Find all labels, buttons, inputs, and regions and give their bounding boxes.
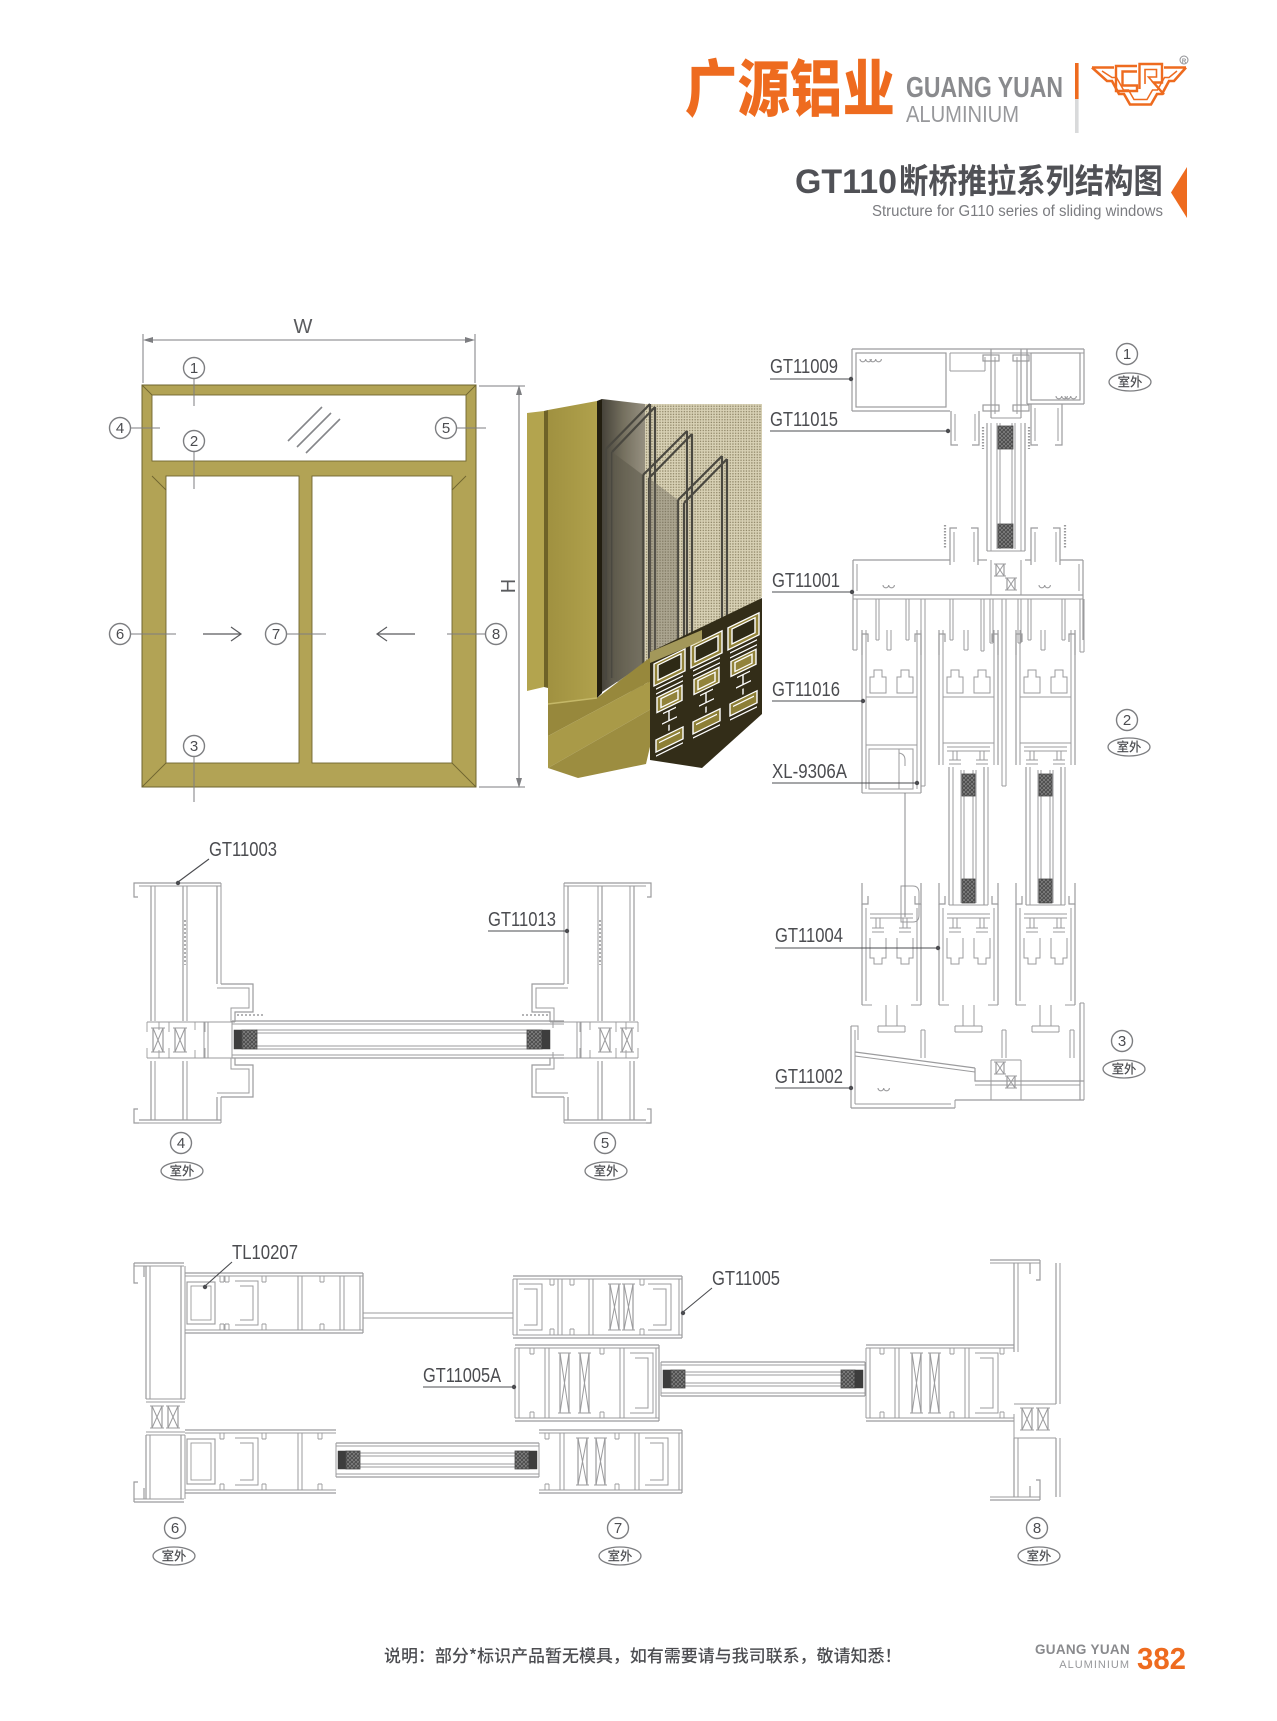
svg-text:XL-9306A: XL-9306A: [772, 760, 847, 783]
svg-text:5: 5: [442, 420, 450, 437]
svg-text:2: 2: [190, 433, 198, 450]
svg-text:GT11003: GT11003: [209, 838, 277, 861]
svg-text:GT11004: GT11004: [775, 924, 843, 947]
svg-text:4: 4: [177, 1135, 185, 1152]
svg-text:GT11009: GT11009: [770, 355, 838, 378]
svg-text:1: 1: [190, 360, 198, 377]
svg-text:GT11001: GT11001: [772, 569, 840, 592]
svg-text:H: H: [498, 579, 520, 593]
svg-text:GT110: GT110: [795, 163, 897, 201]
svg-text:R: R: [1182, 59, 1187, 65]
svg-text:3: 3: [190, 738, 198, 755]
svg-text:ALUMINIUM: ALUMINIUM: [906, 101, 1019, 127]
svg-text:3: 3: [1118, 1033, 1126, 1050]
svg-text:6: 6: [116, 626, 124, 643]
svg-text:6: 6: [171, 1520, 179, 1537]
svg-text:4: 4: [116, 420, 124, 437]
svg-text:GT11005: GT11005: [712, 1267, 780, 1290]
svg-text:GUANG YUAN: GUANG YUAN: [1035, 1642, 1130, 1657]
svg-text:W: W: [294, 316, 313, 338]
svg-text:5: 5: [601, 1135, 609, 1152]
svg-text:ALUMINIUM: ALUMINIUM: [1059, 1659, 1130, 1671]
svg-text:2: 2: [1123, 712, 1131, 729]
svg-text:1: 1: [1123, 346, 1131, 363]
svg-text:GT11002: GT11002: [775, 1065, 843, 1088]
svg-text:GUANG YUAN: GUANG YUAN: [906, 72, 1063, 104]
svg-text:8: 8: [1033, 1520, 1041, 1537]
svg-text:GT11015: GT11015: [770, 408, 838, 431]
svg-text:TL10207: TL10207: [232, 1241, 298, 1264]
svg-text:8: 8: [492, 626, 500, 643]
svg-text:GT11005A: GT11005A: [423, 1364, 501, 1387]
svg-text:7: 7: [614, 1520, 622, 1537]
svg-text:Structure for G110 series of s: Structure for G110 series of sliding win…: [872, 203, 1163, 220]
svg-text:382: 382: [1137, 1641, 1186, 1676]
svg-text:7: 7: [272, 626, 280, 643]
svg-text:GT11013: GT11013: [488, 908, 556, 931]
svg-text:GT11016: GT11016: [772, 678, 840, 701]
